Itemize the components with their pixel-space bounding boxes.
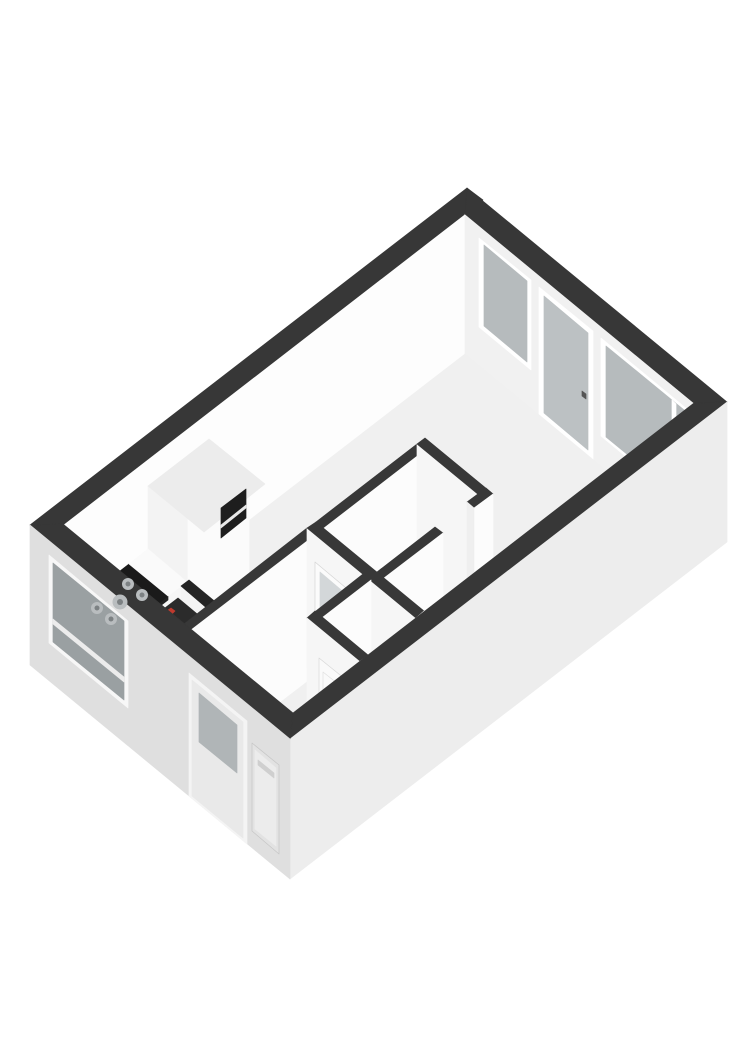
hob-burner-1-cap (95, 606, 100, 611)
hob-burner-2-cap (109, 617, 114, 622)
floorplan-stage (0, 0, 743, 1050)
hob-burner-5-cap (140, 593, 145, 598)
floorplan-3d-canvas[interactable] (0, 0, 743, 1050)
hob-burner-3-cap (117, 599, 123, 605)
hob-burner-4-cap (126, 582, 131, 587)
